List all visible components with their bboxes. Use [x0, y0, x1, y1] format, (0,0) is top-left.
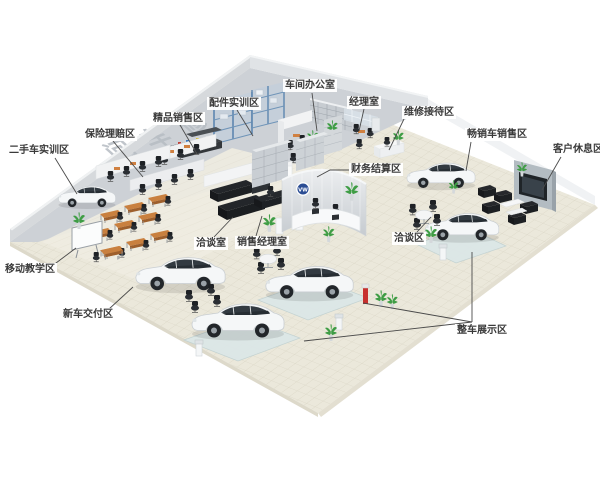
extinguisher-stand — [362, 284, 369, 304]
vw-logo-text: VW — [298, 188, 308, 194]
isometric-scene: 修 车 间 — [0, 0, 600, 480]
dealership-layout-diagram: 修 车 间 — [0, 0, 600, 480]
